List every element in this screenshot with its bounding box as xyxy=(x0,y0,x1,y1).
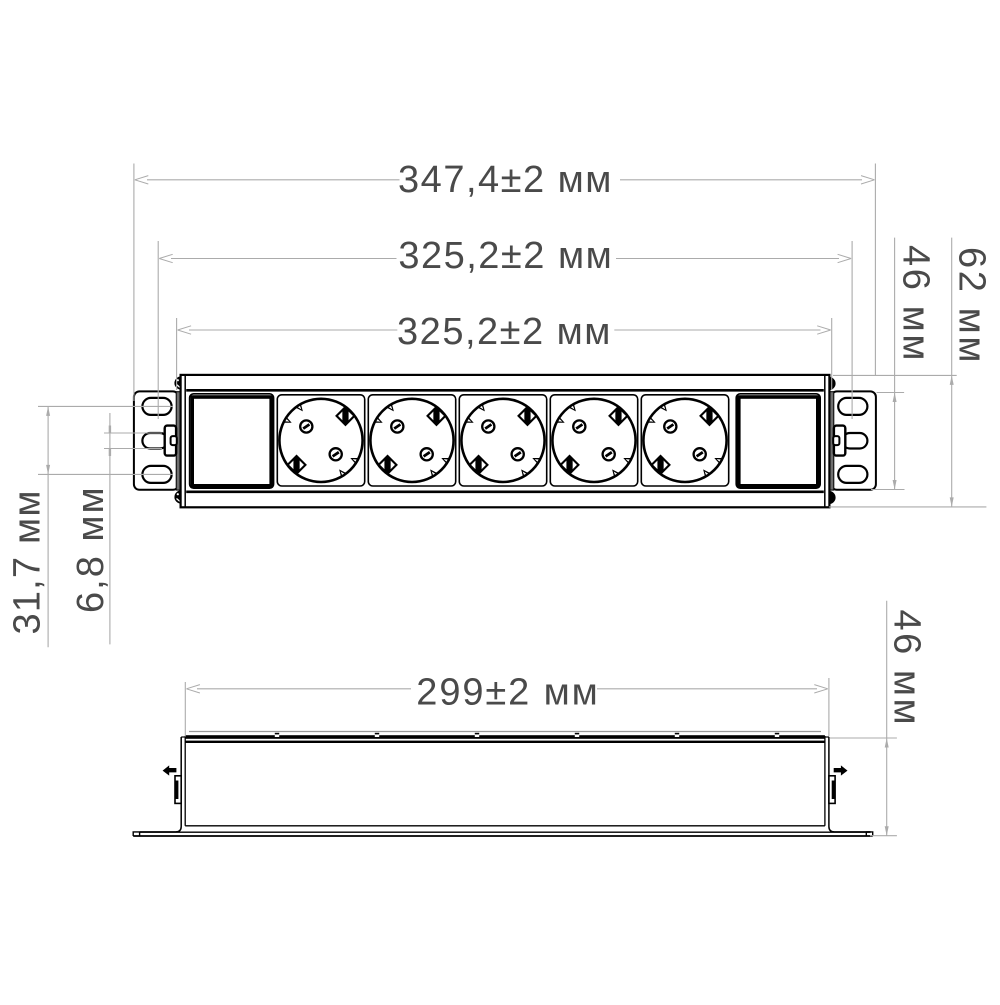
svg-text:46 мм: 46 мм xyxy=(895,245,937,363)
svg-text:325,2±2 мм: 325,2±2 мм xyxy=(397,311,612,353)
svg-text:299±2 мм: 299±2 мм xyxy=(416,672,599,714)
svg-text:46 мм: 46 мм xyxy=(886,610,928,728)
svg-text:62 мм: 62 мм xyxy=(951,247,993,365)
svg-text:6,8 мм: 6,8 мм xyxy=(70,485,112,613)
svg-text:31,7 мм: 31,7 мм xyxy=(7,489,49,634)
svg-text:347,4±2 мм: 347,4±2 мм xyxy=(398,159,613,201)
svg-text:325,2±2 мм: 325,2±2 мм xyxy=(398,235,613,277)
